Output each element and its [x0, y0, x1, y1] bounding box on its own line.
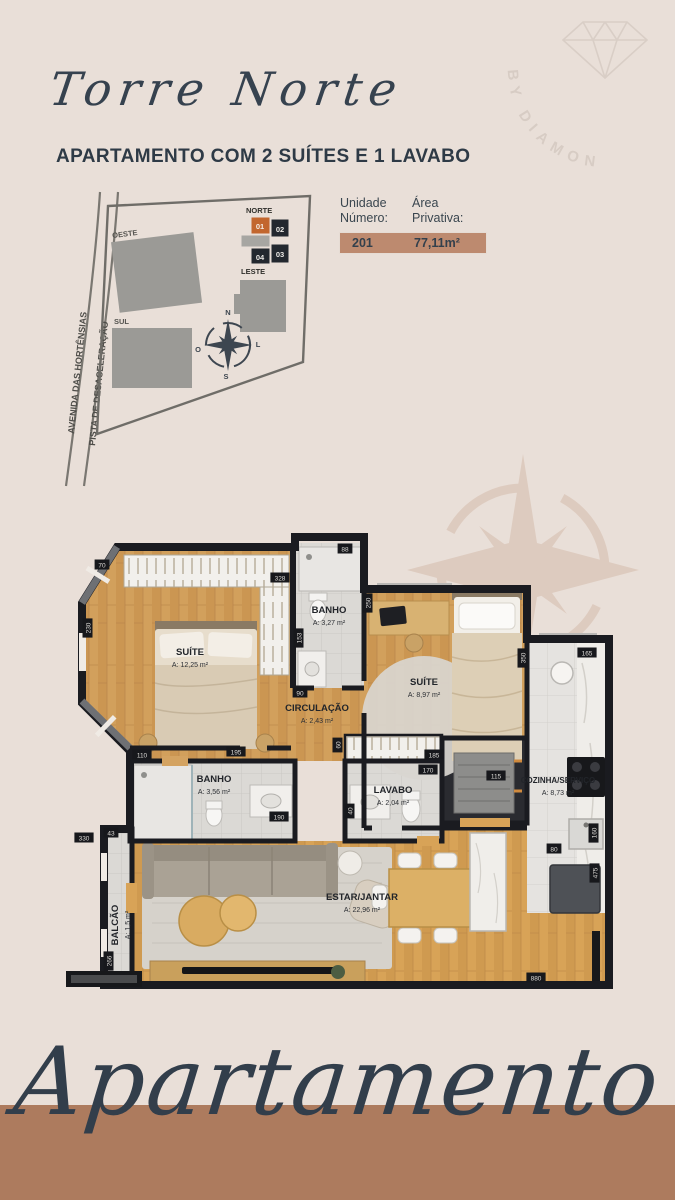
building-leste-label: LESTE — [241, 267, 265, 276]
compass-s: S — [223, 372, 228, 381]
svg-text:90: 90 — [296, 691, 304, 698]
svg-text:SUÍTE: SUÍTE — [176, 647, 204, 658]
svg-text:350: 350 — [521, 652, 528, 663]
coffee-table-small — [220, 895, 256, 931]
sofa — [142, 843, 338, 899]
building-oeste: OESTE — [110, 221, 202, 313]
private-area-value: 77,11m² — [414, 236, 460, 250]
washer — [454, 753, 522, 813]
diamond-icon — [563, 22, 647, 78]
svg-text:266: 266 — [107, 955, 114, 966]
svg-text:COZINHA/SERVIÇO: COZINHA/SERVIÇO — [521, 776, 596, 785]
svg-text:A: 1,5 m²: A: 1,5 m² — [125, 910, 132, 939]
building-leste: LESTE — [234, 267, 286, 332]
dimension-chip: 165 — [577, 648, 596, 658]
dimension-chip: 475 — [590, 863, 600, 882]
svg-text:185: 185 — [429, 753, 440, 760]
floor-plan: SUÍTEA: 12,25 m²BANHOA: 3,27 m²SUÍTEA: 8… — [62, 533, 614, 1015]
tv-console — [150, 961, 365, 983]
unit-number-value: 201 — [340, 236, 414, 250]
bed-double — [139, 621, 274, 752]
unit-info: Unidade Número: Área Privativa: 201 77,1… — [340, 196, 490, 253]
dimension-chip: 90 — [293, 688, 308, 698]
compass-n: N — [225, 308, 230, 317]
dimension-chip: 350 — [518, 648, 528, 667]
unit-value-bar: 201 77,11m² — [340, 233, 486, 253]
compass-o: O — [195, 345, 201, 354]
svg-text:153: 153 — [297, 632, 304, 643]
dimension-chip: 43 — [104, 828, 119, 838]
svg-text:A: 2,04 m²: A: 2,04 m² — [377, 800, 410, 807]
svg-text:A: 22,96 m²: A: 22,96 m² — [344, 907, 381, 914]
plant — [331, 965, 345, 979]
svg-text:475: 475 — [593, 867, 600, 878]
svg-text:BANHO: BANHO — [312, 605, 347, 616]
svg-text:A: 3,27 m²: A: 3,27 m² — [313, 620, 346, 627]
page-title: APARTAMENTO COM 2 SUÍTES E 1 LAVABO — [56, 146, 470, 168]
dimension-chip: 195 — [226, 747, 245, 757]
svg-text:A: 8,97 m²: A: 8,97 m² — [408, 692, 441, 699]
tv-wall-panel — [592, 931, 600, 983]
svg-text:328: 328 — [275, 576, 286, 583]
street-label-avenida: AVENIDA DAS HORTÊNSIAS — [65, 311, 89, 434]
dimension-chip: 170 — [418, 765, 437, 775]
dimension-chip: 40 — [345, 804, 355, 819]
dimension-chip: 185 — [424, 750, 443, 760]
dimension-chip: 328 — [270, 573, 289, 583]
dimension-chip: 115 — [486, 771, 505, 781]
tv — [182, 967, 342, 974]
side-table — [338, 851, 362, 875]
svg-text:115: 115 — [491, 774, 502, 781]
dimension-chip: 880 — [526, 973, 545, 983]
svg-text:40: 40 — [348, 807, 355, 815]
svg-text:A: 12,25 m²: A: 12,25 m² — [172, 662, 209, 669]
svg-text:110: 110 — [137, 753, 148, 760]
unit-cell-blank — [241, 235, 270, 247]
svg-text:CIRCULAÇÃO: CIRCULAÇÃO — [285, 703, 349, 714]
building-sul: SUL — [112, 317, 192, 388]
unit-label-03: 03 — [276, 250, 284, 259]
svg-text:170: 170 — [423, 768, 434, 775]
unit-grid-norte-label: NORTE — [246, 206, 272, 215]
svg-text:A: 3,56 m²: A: 3,56 m² — [198, 789, 231, 796]
svg-text:SUÍTE: SUÍTE — [410, 677, 438, 688]
svg-text:ESTAR/JANTAR: ESTAR/JANTAR — [326, 892, 398, 903]
svg-text:70: 70 — [98, 563, 106, 570]
private-area-header: Área Privativa: — [412, 196, 463, 226]
svg-text:195: 195 — [231, 750, 242, 757]
unit-label-02: 02 — [276, 225, 284, 234]
footer-script-title: Apartamento — [0, 1028, 675, 1137]
unit-label-01: 01 — [256, 222, 264, 231]
svg-text:BALCÃO: BALCÃO — [110, 905, 121, 946]
unit-grid: NORTE 01 02 04 03 — [241, 206, 289, 264]
svg-text:88: 88 — [341, 547, 349, 554]
building-sul-label: SUL — [114, 317, 129, 326]
site-map: AVENIDA DAS HORTÊNSIAS PISTA DE DESACELE… — [50, 188, 345, 488]
compass-l: L — [256, 340, 261, 349]
svg-text:880: 880 — [531, 976, 542, 983]
brochure-page: BY DIAMOND Torre Norte APARTAMENTO COM 2… — [0, 0, 675, 1200]
svg-text:A: 2,43 m²: A: 2,43 m² — [301, 718, 334, 725]
svg-text:80: 80 — [550, 847, 558, 854]
svg-text:A: 8,73 m²: A: 8,73 m² — [542, 790, 575, 797]
dimension-chip: 230 — [83, 618, 93, 637]
tower-title: Torre Norte — [46, 62, 407, 116]
svg-text:250: 250 — [366, 597, 373, 608]
dimension-chip: 266 — [104, 951, 114, 970]
svg-text:LAVABO: LAVABO — [374, 785, 413, 796]
svg-text:165: 165 — [582, 651, 593, 658]
svg-text:230: 230 — [86, 622, 93, 633]
kitchen-island — [470, 833, 506, 931]
unit-number-header: Unidade Número: — [340, 196, 398, 226]
dimension-chip: 153 — [294, 628, 304, 647]
planter-box — [66, 971, 142, 987]
dimension-chip: 160 — [589, 823, 599, 842]
building-oeste-label: OESTE — [112, 228, 138, 240]
dimension-chip: 80 — [547, 844, 562, 854]
dimension-chip: 88 — [338, 544, 353, 554]
diamond-watermark: BY DIAMOND — [480, 0, 675, 210]
svg-text:60: 60 — [336, 741, 343, 749]
svg-text:BANHO: BANHO — [197, 774, 232, 785]
dimension-chip: 70 — [95, 560, 110, 570]
dimension-chip: 110 — [132, 750, 151, 760]
dimension-chip: 330 — [74, 833, 93, 843]
svg-text:190: 190 — [274, 815, 285, 822]
svg-text:43: 43 — [107, 831, 115, 838]
svg-text:160: 160 — [592, 827, 599, 838]
dimension-chip: 190 — [269, 812, 288, 822]
dimension-chip: 60 — [333, 738, 343, 753]
unit-label-04: 04 — [256, 253, 265, 262]
dimension-chip: 250 — [363, 593, 373, 612]
svg-text:330: 330 — [79, 836, 90, 843]
